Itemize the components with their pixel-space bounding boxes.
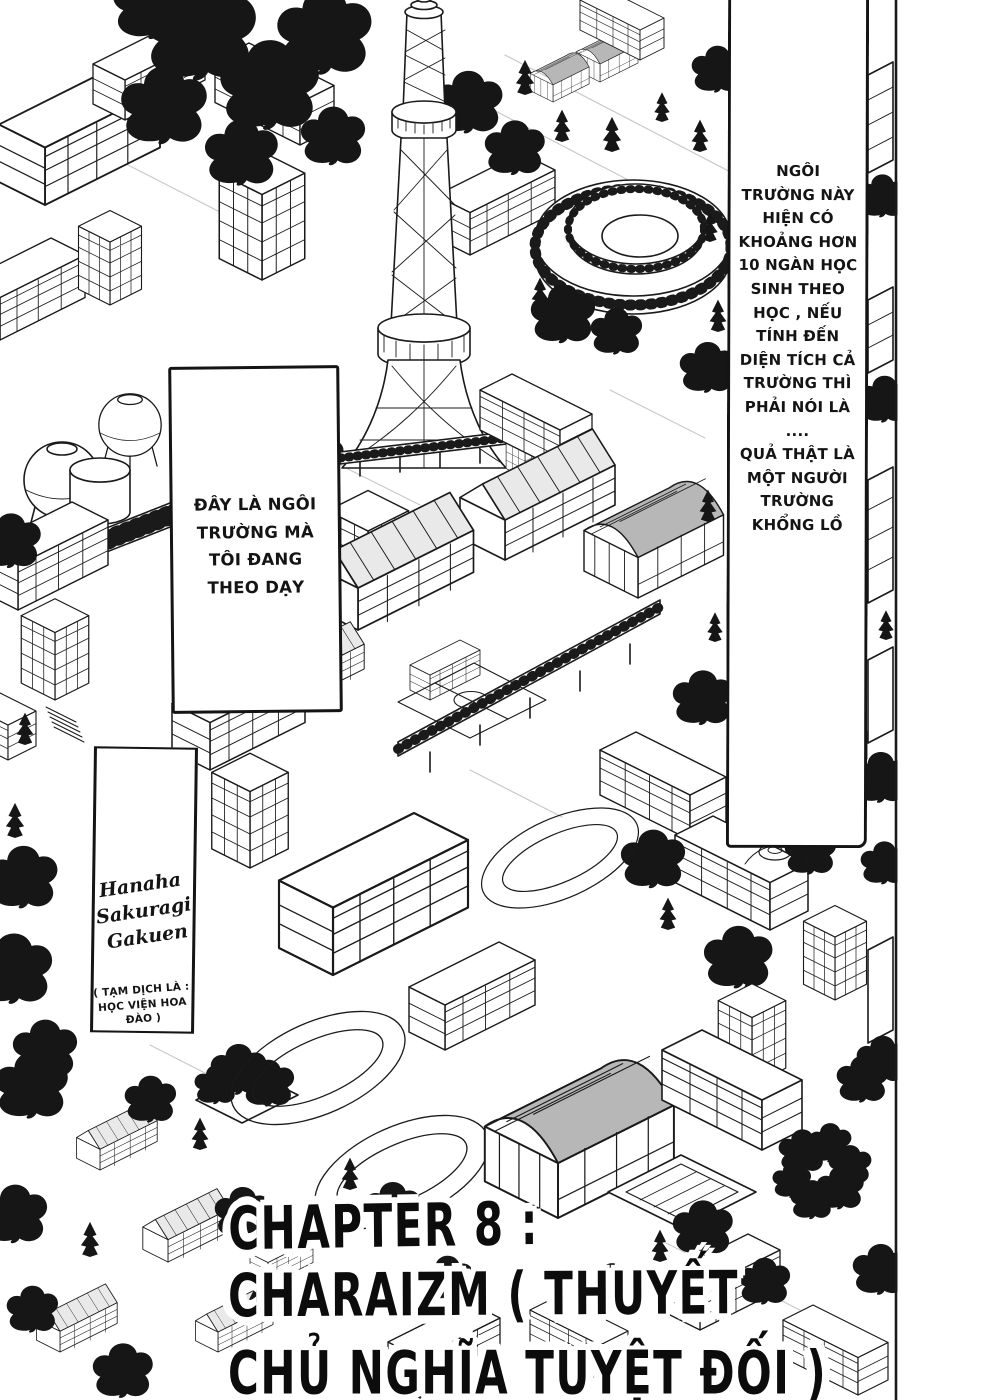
- page-margin: [898, 0, 981, 1400]
- school-name-box: Hanaha Sakuragi Gakuen ( TẠM DỊCH LÀ : H…: [90, 746, 198, 1033]
- chapter-title-line-3: CHỦ NGHĨA TUYỆT ĐỐI ): [228, 1338, 827, 1400]
- narration-box-right: NGÔI TRƯỜNG NÀY HIỆN CÓ KHOẢNG HƠN 10 NG…: [726, 0, 869, 848]
- school-name: Hanaha Sakuragi Gakuen: [90, 865, 198, 956]
- manga-page: NGÔI TRƯỜNG NÀY HIỆN CÓ KHOẢNG HƠN 10 NG…: [0, 0, 981, 1400]
- school-name-translation-note: ( TẠM DỊCH LÀ : HỌC VIỆN HOA ĐÀO ): [92, 979, 193, 1030]
- chapter-title-line-2: CHARAIZM ( THUYẾT: [228, 1258, 739, 1331]
- chapter-title-line-1: CHAPTER 8 :: [228, 1189, 539, 1264]
- narration-box-middle: ĐÂY LÀ NGÔI TRƯỜNG MÀ TÔI ĐANG THEO DẠY: [168, 365, 343, 714]
